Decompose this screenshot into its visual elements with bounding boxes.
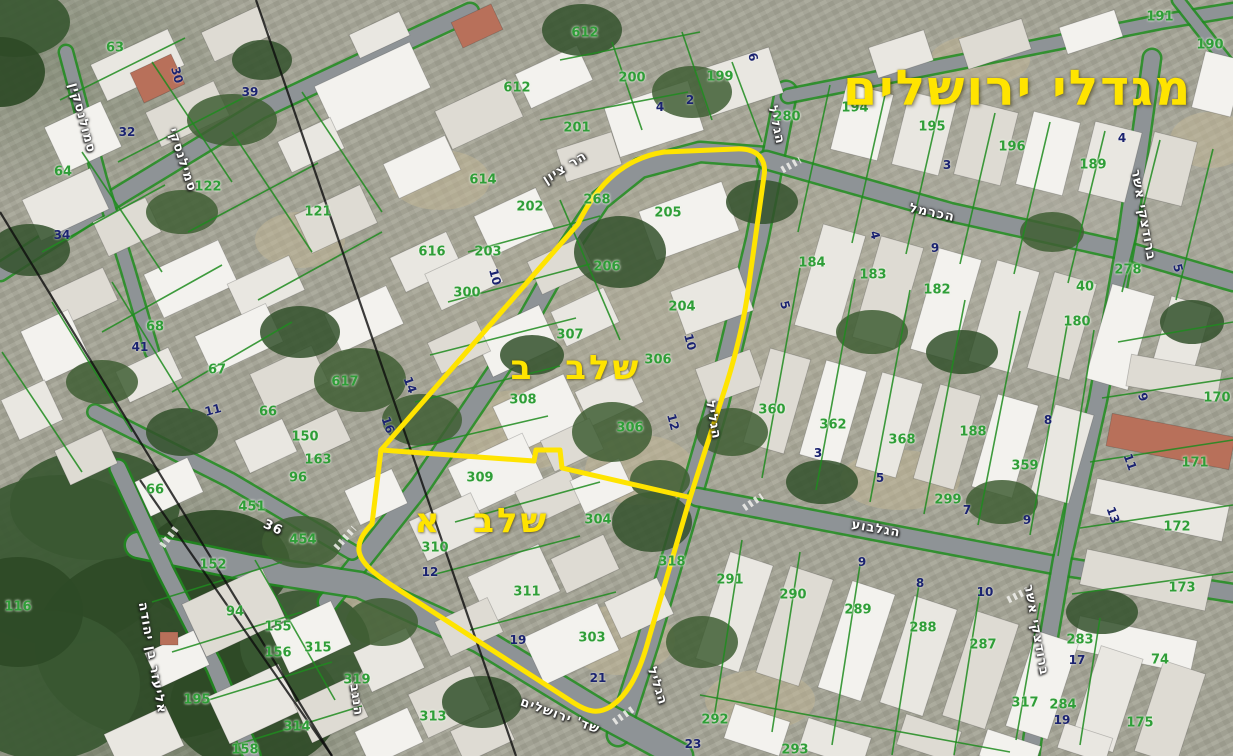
map-title: מגדלי ירושלים: [843, 60, 1192, 117]
aerial-map: הר ציוןהגלילהגלילהגלילהכרמלהגלבועסמילנסק…: [0, 0, 1233, 756]
